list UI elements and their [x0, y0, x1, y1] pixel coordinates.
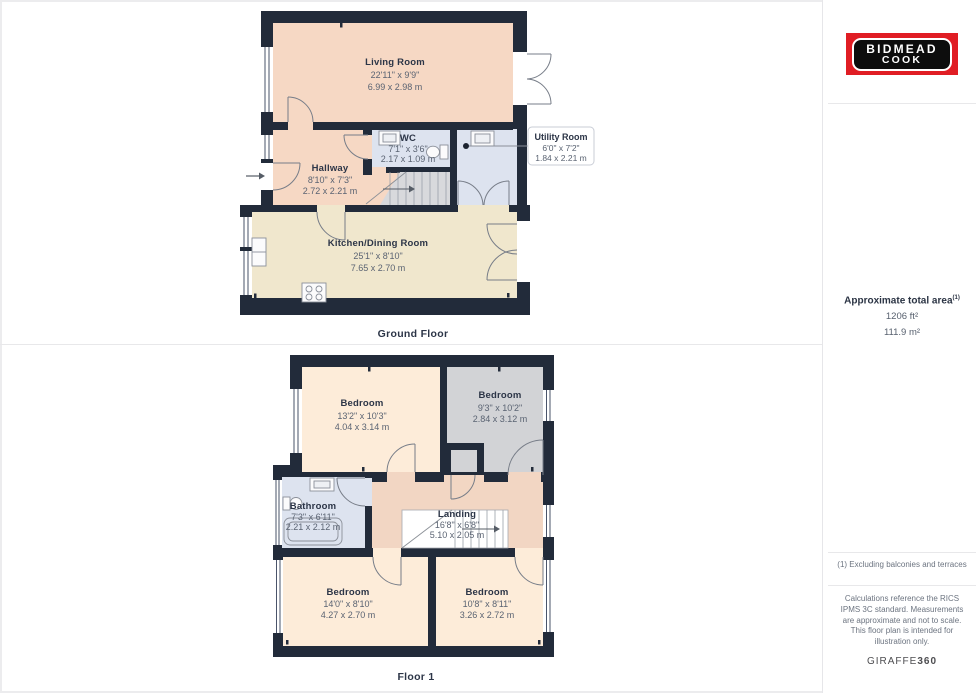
- room-dim-metric: 2.17 x 1.09 m: [381, 154, 436, 164]
- room-name: Bedroom: [478, 390, 521, 401]
- room-name: Landing: [438, 509, 476, 520]
- bidmead-cook-logo: BIDMEAD COOK: [846, 33, 958, 75]
- sink-basin: [383, 134, 396, 142]
- door-opening: [515, 548, 543, 557]
- room-name: Utility Room: [535, 132, 588, 142]
- room-name: Bathroom: [290, 501, 336, 512]
- room-name: WC: [400, 133, 416, 144]
- logo-line1: BIDMEAD: [866, 44, 937, 55]
- floorplan-drawing: Utility Room 6'0" x 7'2" 1.84 x 2.21 m L…: [0, 0, 822, 693]
- door-opening: [373, 548, 401, 557]
- room-dim-imperial: 25'1" x 8'10": [353, 251, 402, 261]
- door-opening: [365, 478, 372, 506]
- toilet-cistern-icon: [440, 145, 448, 159]
- info-sidebar: BIDMEAD COOK Approximate total area(1) 1…: [822, 0, 980, 693]
- room-dim-metric: 7.65 x 2.70 m: [351, 263, 406, 273]
- room-name: Bedroom: [340, 398, 383, 409]
- room-dim-imperial: 7'3" x 6'11": [291, 512, 335, 522]
- footnote-text: (1) Excluding balconies and terraces: [823, 560, 980, 569]
- room-dim-metric: 4.04 x 3.14 m: [335, 422, 390, 432]
- door-opening: [363, 135, 372, 159]
- room-dim-metric: 2.72 x 2.21 m: [303, 186, 358, 196]
- logo-line2: COOK: [882, 55, 922, 65]
- french-door-opening: [513, 52, 527, 105]
- ground-floor-plan: Utility Room 6'0" x 7'2" 1.84 x 2.21 m L…: [240, 11, 594, 340]
- room-dim-metric: 3.26 x 2.72 m: [460, 610, 515, 620]
- floorplan-page: Utility Room 6'0" x 7'2" 1.84 x 2.21 m L…: [0, 0, 980, 693]
- room-dim-imperial: 8'10" x 7'3": [308, 175, 352, 185]
- door-opening: [458, 205, 509, 212]
- door-opening: [387, 472, 415, 482]
- sink-basin: [314, 481, 330, 488]
- room-name: Bedroom: [326, 587, 369, 598]
- utility-sink-basin: [475, 134, 490, 143]
- room-dim-imperial: 10'8" x 8'11": [463, 599, 512, 609]
- ground-floor-label: Ground Floor: [378, 328, 449, 340]
- total-area-metric: 111.9 m²: [823, 327, 980, 338]
- hob-icon: [302, 283, 326, 302]
- sidebar-divider: [828, 552, 976, 553]
- total-area-title: Approximate total area(1): [823, 295, 980, 306]
- floor-1-label: Floor 1: [397, 671, 434, 683]
- total-area-imperial: 1206 ft²: [823, 311, 980, 322]
- sidebar-divider: [828, 585, 976, 586]
- room-dim-imperial: 7'1" x 3'6": [388, 144, 427, 154]
- section-divider: [0, 344, 822, 345]
- room-dim-imperial: 9'3" x 10'2": [478, 403, 522, 413]
- room-dim-imperial: 16'8" x 6'8": [435, 520, 479, 530]
- room-name: Living Room: [365, 57, 425, 68]
- door-opening: [317, 205, 345, 212]
- room-dim-metric: 5.10 x 2.05 m: [430, 530, 485, 540]
- provider-suffix: 360: [917, 656, 937, 667]
- provider-name: GIRAFFE: [867, 656, 917, 667]
- wall: [450, 129, 457, 205]
- footnote-marker: (1): [953, 295, 960, 301]
- room-dim-imperial: 13'2" x 10'3": [337, 411, 386, 421]
- giraffe360-logo: GIRAFFE360: [823, 656, 980, 667]
- room-dim-imperial: 22'11" x 9'9": [371, 70, 420, 80]
- french-door-opening: [517, 221, 530, 282]
- room-dim-metric: 2.21 x 2.12 m: [286, 522, 341, 532]
- room-dim-imperial: 6'0" x 7'2": [542, 143, 579, 153]
- first-floor-plan: Bedroom 13'2" x 10'3" 4.04 x 3.14 m Bedr…: [273, 355, 554, 683]
- door-opening: [508, 472, 541, 482]
- room-dim-metric: 4.27 x 2.70 m: [321, 610, 376, 620]
- sidebar-divider: [828, 103, 976, 104]
- room-dim-metric: 2.84 x 3.12 m: [473, 414, 528, 424]
- room-name: Bedroom: [465, 587, 508, 598]
- door-opening: [288, 122, 313, 130]
- room-dim-imperial: 14'0" x 8'10": [323, 599, 372, 609]
- total-area-summary: Approximate total area(1) 1206 ft² 111.9…: [823, 295, 980, 338]
- room-dim-metric: 6.99 x 2.98 m: [368, 82, 423, 92]
- room-name: Kitchen/Dining Room: [328, 238, 428, 249]
- callout-anchor-dot: [463, 143, 469, 149]
- disclaimer-text: Calculations reference the RICS IPMS 3C …: [837, 594, 967, 648]
- room-name: Hallway: [312, 163, 349, 174]
- room-dim-metric: 1.84 x 2.21 m: [535, 153, 587, 163]
